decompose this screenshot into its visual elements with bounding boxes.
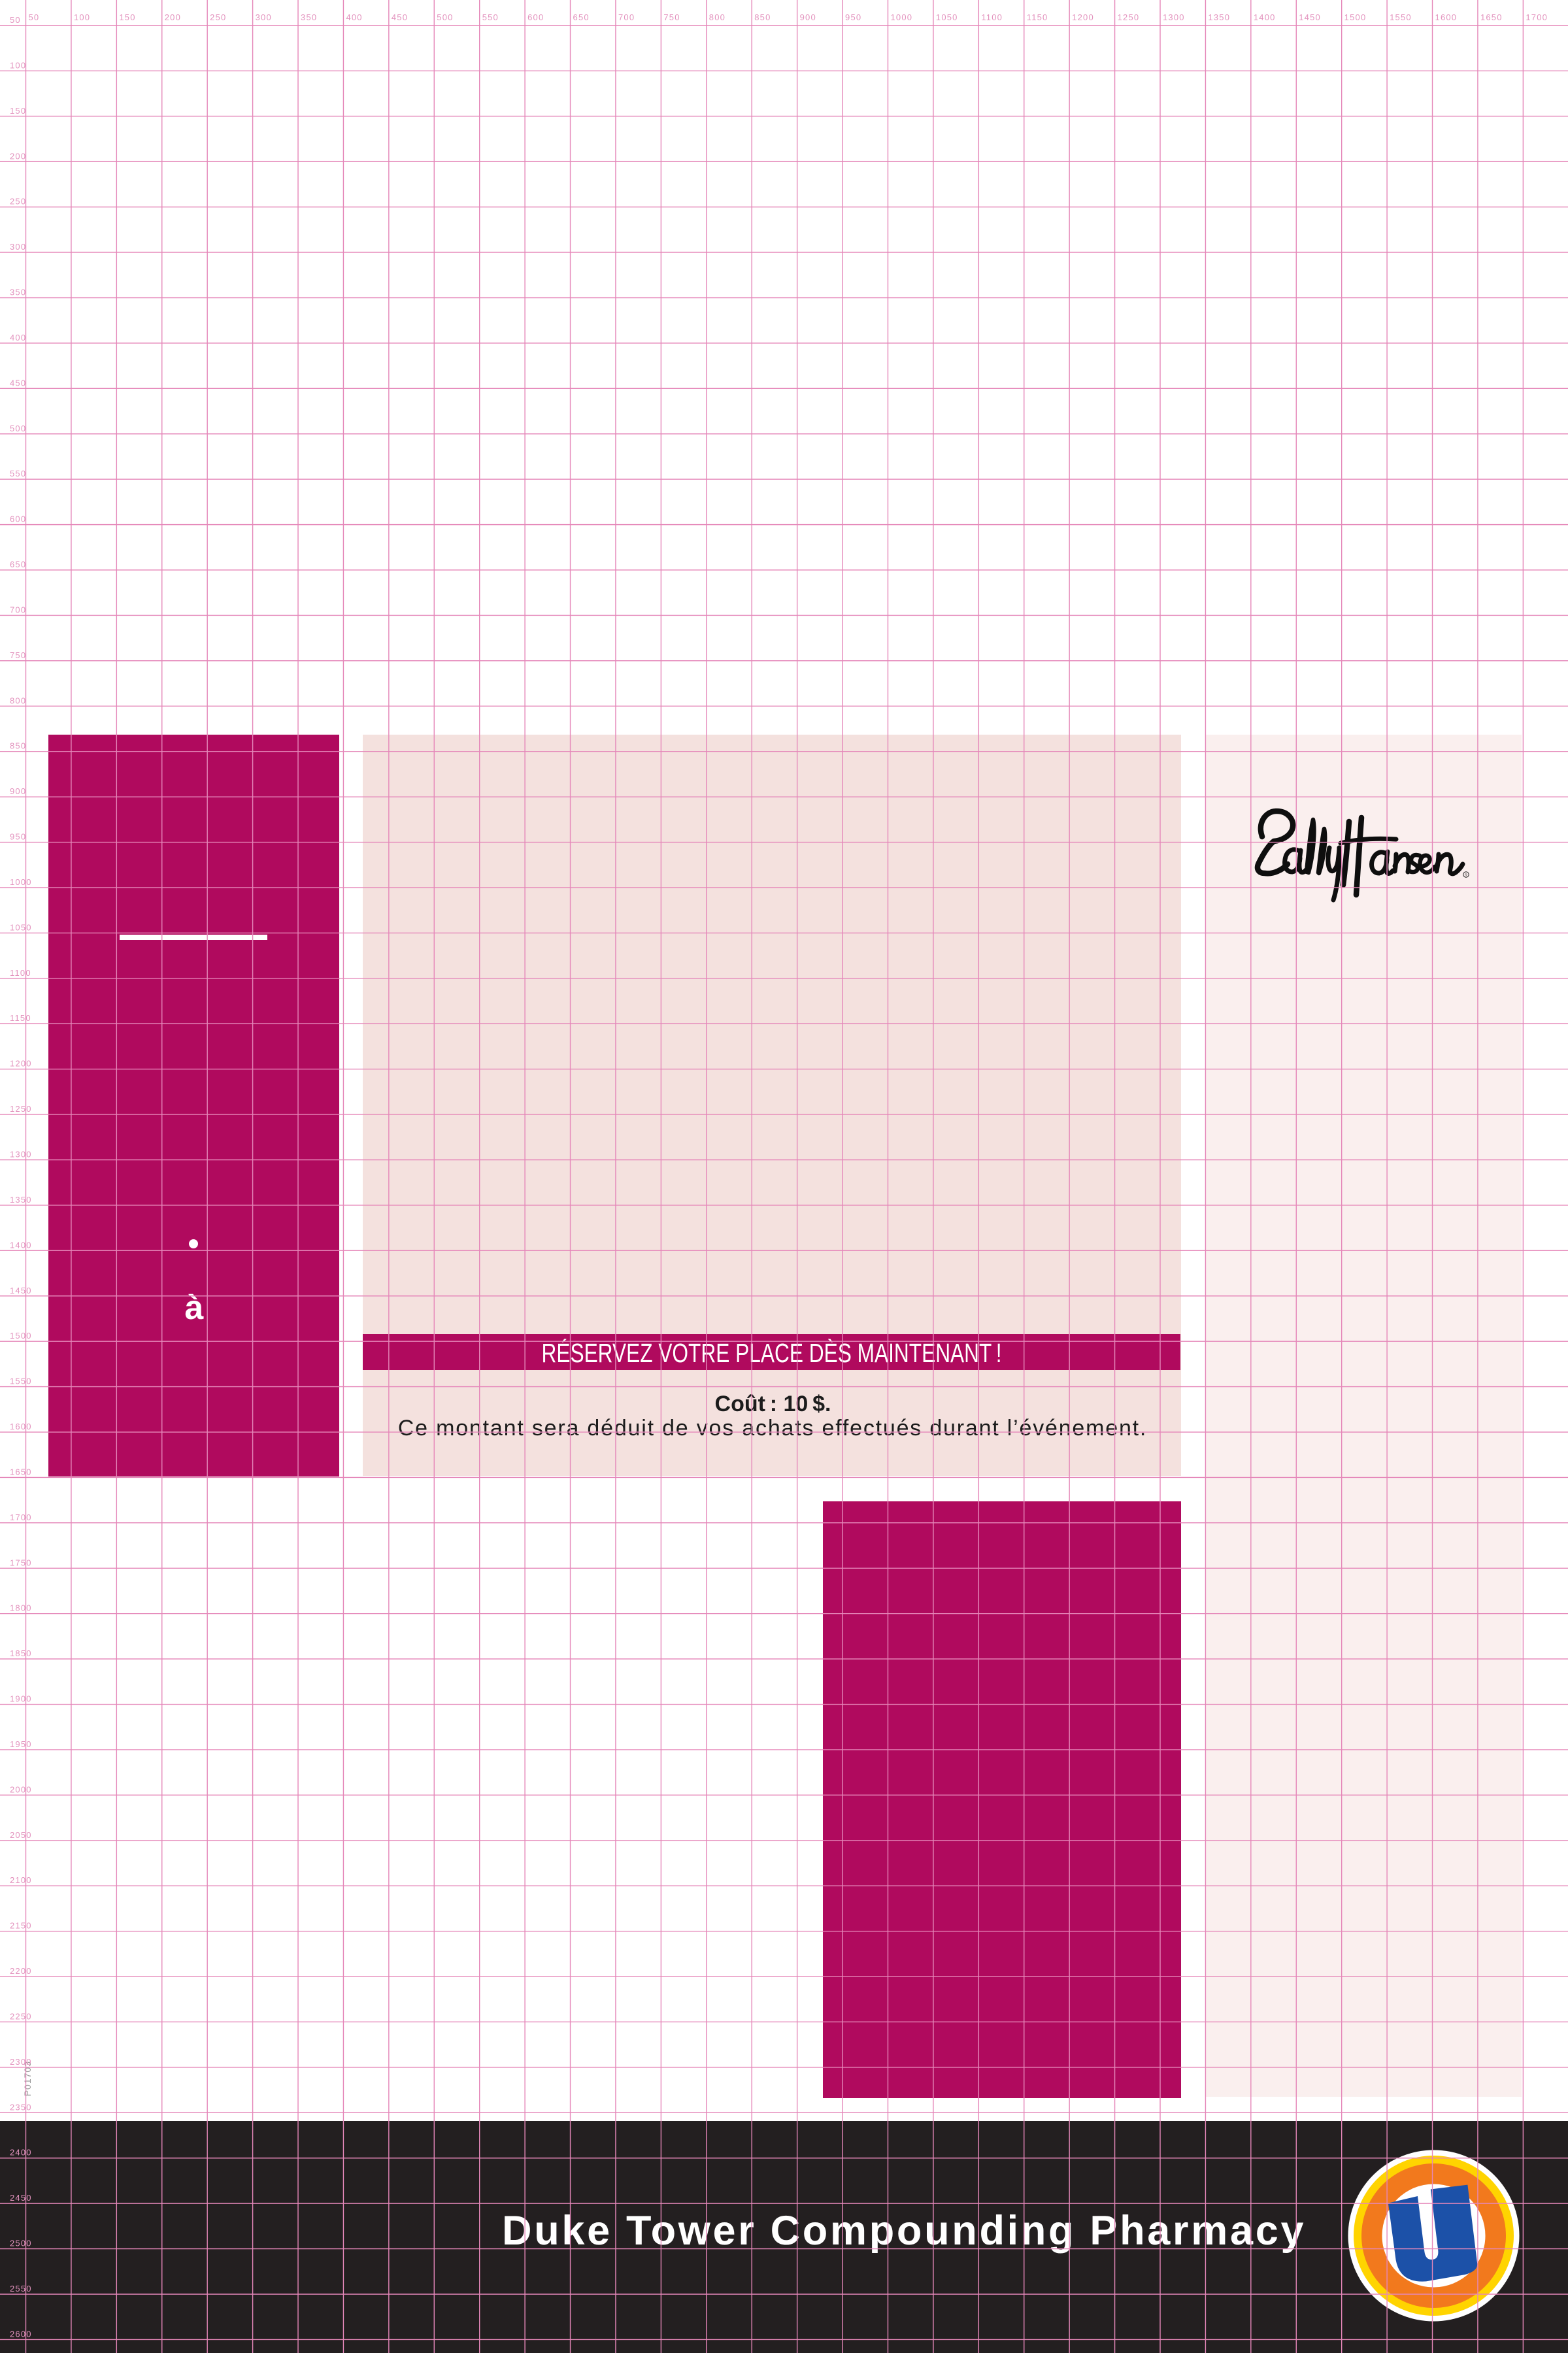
svg-text:500: 500 [10, 424, 26, 433]
svg-text:250: 250 [10, 197, 26, 207]
svg-text:1200: 1200 [10, 1059, 32, 1069]
svg-text:250: 250 [210, 12, 226, 22]
svg-text:400: 400 [346, 12, 362, 22]
svg-text:100: 100 [74, 12, 90, 22]
svg-text:500: 500 [437, 12, 453, 22]
svg-text:300: 300 [256, 12, 272, 22]
svg-text:2150: 2150 [10, 1921, 32, 1931]
svg-text:1450: 1450 [1299, 12, 1321, 22]
svg-text:400: 400 [10, 333, 26, 342]
svg-text:2050: 2050 [10, 1830, 32, 1840]
svg-text:350: 350 [10, 288, 26, 297]
svg-text:1050: 1050 [936, 12, 958, 22]
svg-text:650: 650 [573, 12, 590, 22]
svg-text:350: 350 [301, 12, 317, 22]
svg-text:550: 550 [10, 469, 26, 478]
svg-text:1450: 1450 [10, 1286, 32, 1295]
svg-text:R: R [1465, 874, 1467, 878]
svg-text:1600: 1600 [1435, 12, 1458, 22]
svg-text:800: 800 [10, 695, 26, 705]
svg-text:1550: 1550 [10, 1377, 32, 1386]
svg-text:1500: 1500 [1344, 12, 1367, 22]
svg-text:1150: 1150 [10, 1013, 31, 1023]
svg-text:1250: 1250 [1118, 12, 1140, 22]
svg-text:850: 850 [10, 741, 26, 751]
svg-text:300: 300 [10, 242, 26, 252]
svg-text:700: 700 [10, 605, 26, 614]
svg-text:50: 50 [10, 15, 21, 25]
svg-text:1700: 1700 [10, 1512, 32, 1522]
svg-text:1200: 1200 [1072, 12, 1094, 22]
svg-text:1550: 1550 [1390, 12, 1412, 22]
svg-text:450: 450 [10, 378, 26, 388]
svg-text:1900: 1900 [10, 1694, 32, 1704]
svg-text:750: 750 [10, 650, 26, 660]
svg-text:800: 800 [709, 12, 726, 22]
svg-text:450: 450 [392, 12, 408, 22]
svg-text:1100: 1100 [10, 968, 31, 978]
svg-text:1100: 1100 [981, 12, 1003, 22]
svg-text:700: 700 [618, 12, 635, 22]
svg-text:2000: 2000 [10, 1784, 32, 1794]
svg-text:1000: 1000 [890, 12, 912, 22]
svg-text:200: 200 [165, 12, 181, 22]
svg-text:1700: 1700 [1526, 12, 1548, 22]
svg-text:850: 850 [754, 12, 771, 22]
svg-text:1500: 1500 [10, 1331, 32, 1341]
svg-text:1600: 1600 [10, 1422, 32, 1431]
svg-text:1650: 1650 [10, 1467, 32, 1477]
svg-text:750: 750 [663, 12, 680, 22]
svg-text:1000: 1000 [10, 877, 32, 887]
svg-text:1850: 1850 [10, 1648, 32, 1658]
svg-text:150: 150 [119, 12, 135, 22]
svg-text:1350: 1350 [10, 1195, 32, 1205]
svg-text:2250: 2250 [10, 2011, 32, 2021]
svg-text:100: 100 [10, 60, 26, 70]
svg-text:1300: 1300 [10, 1150, 32, 1160]
svg-text:650: 650 [10, 559, 26, 569]
svg-text:150: 150 [10, 106, 26, 116]
svg-text:1400: 1400 [10, 1240, 32, 1250]
svg-text:1250: 1250 [10, 1104, 32, 1114]
svg-text:200: 200 [10, 151, 26, 161]
svg-text:2200: 2200 [10, 1966, 32, 1976]
svg-text:1350: 1350 [1208, 12, 1230, 22]
svg-text:950: 950 [845, 12, 861, 22]
svg-text:1650: 1650 [1480, 12, 1503, 22]
svg-text:1050: 1050 [10, 922, 32, 932]
svg-text:900: 900 [800, 12, 816, 22]
svg-text:600: 600 [527, 12, 544, 22]
svg-text:550: 550 [482, 12, 499, 22]
svg-text:950: 950 [10, 832, 26, 842]
svg-text:1800: 1800 [10, 1603, 32, 1613]
svg-text:600: 600 [10, 514, 26, 524]
svg-text:900: 900 [10, 786, 26, 796]
svg-text:1750: 1750 [10, 1558, 32, 1567]
svg-text:50: 50 [29, 12, 40, 22]
svg-text:2100: 2100 [10, 1875, 32, 1885]
svg-text:1300: 1300 [1163, 12, 1185, 22]
svg-text:1400: 1400 [1254, 12, 1276, 22]
svg-text:1150: 1150 [1027, 12, 1048, 22]
svg-text:1950: 1950 [10, 1739, 32, 1749]
